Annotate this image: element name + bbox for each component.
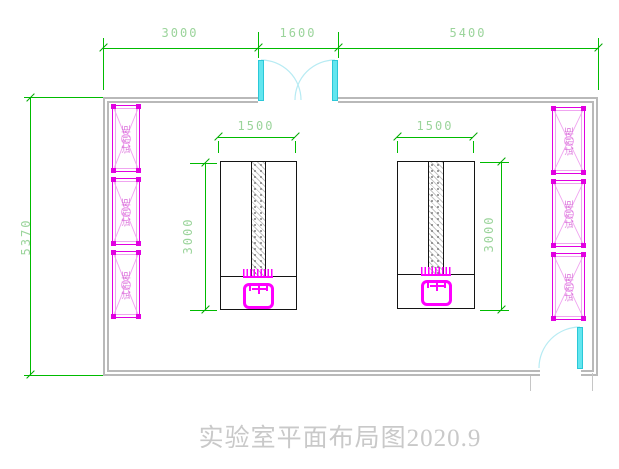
cabinet-post bbox=[551, 170, 556, 175]
drainer-icon bbox=[421, 267, 451, 276]
cabinet-post bbox=[581, 170, 586, 175]
dim-label-top-middle: 1600 bbox=[268, 26, 328, 40]
faucet-handle bbox=[427, 283, 429, 288]
sink-icon bbox=[421, 280, 452, 306]
dim-line-top bbox=[103, 48, 598, 49]
door-leaf-bottom bbox=[577, 327, 583, 369]
cabinet-post bbox=[136, 314, 141, 319]
wall-opening-top bbox=[258, 95, 338, 105]
cabinet-post bbox=[136, 168, 141, 173]
door-leaf-top-left bbox=[258, 60, 264, 101]
cabinet-post bbox=[111, 104, 116, 109]
reagent-cabinet: 试剂柜 bbox=[112, 251, 140, 318]
reagent-cabinet: 试剂柜 bbox=[112, 105, 140, 172]
floor-plan-canvas: 3000 1600 5400 5370 试剂柜 bbox=[0, 0, 619, 469]
cabinet-post bbox=[581, 179, 586, 184]
reagent-cabinet: 试剂柜 bbox=[112, 178, 140, 245]
bench-service-chase bbox=[251, 162, 266, 276]
cabinet-post bbox=[551, 243, 556, 248]
dim-label-bench-left-width: 1500 bbox=[226, 119, 286, 133]
wall-stub bbox=[592, 373, 593, 391]
cabinet-post bbox=[111, 168, 116, 173]
dim-label-bench-right-width: 1500 bbox=[405, 119, 465, 133]
dim-line-bench-left-width bbox=[218, 137, 295, 138]
cabinet-label: 试剂柜 bbox=[120, 196, 133, 226]
cabinet-post bbox=[136, 177, 141, 182]
room-wall-outline bbox=[103, 97, 598, 376]
cabinet-post bbox=[581, 243, 586, 248]
cabinet-label: 试剂柜 bbox=[562, 125, 575, 155]
cabinet-post bbox=[581, 316, 586, 321]
dim-witness bbox=[218, 141, 219, 153]
dim-label-left-overall: 5370 bbox=[19, 207, 33, 267]
reagent-cabinet: 试剂柜 bbox=[552, 180, 585, 247]
dim-witness bbox=[397, 141, 398, 153]
faucet-handle bbox=[266, 286, 268, 291]
sink-icon bbox=[243, 283, 274, 309]
dim-line-bench-right-width bbox=[397, 137, 473, 138]
cabinet-label: 试剂柜 bbox=[120, 269, 133, 299]
dim-witness bbox=[480, 162, 509, 163]
faucet-bar bbox=[252, 288, 266, 290]
cabinet-post bbox=[551, 316, 556, 321]
faucet-bar bbox=[430, 285, 444, 287]
cabinet-post bbox=[136, 250, 141, 255]
dim-witness bbox=[295, 141, 296, 153]
reagent-cabinet: 试剂柜 bbox=[552, 107, 585, 174]
dim-label-bench-left-depth: 3000 bbox=[181, 206, 195, 266]
cabinet-label: 试剂柜 bbox=[120, 123, 133, 153]
reagent-cabinet: 试剂柜 bbox=[552, 253, 585, 320]
door-leaf-top-right bbox=[332, 60, 338, 101]
dim-witness bbox=[480, 310, 509, 311]
dim-label-top-right: 5400 bbox=[438, 26, 498, 40]
cabinet-post bbox=[551, 179, 556, 184]
dim-witness bbox=[24, 375, 103, 376]
cabinet-post bbox=[111, 314, 116, 319]
cabinet-label: 试剂柜 bbox=[562, 271, 575, 301]
dim-label-bench-right-depth: 3000 bbox=[482, 204, 496, 264]
bench-service-chase bbox=[428, 162, 444, 274]
cabinet-post bbox=[111, 241, 116, 246]
dim-line-bench-right-depth bbox=[501, 162, 502, 310]
cabinet-post bbox=[136, 104, 141, 109]
cabinet-post bbox=[111, 177, 116, 182]
cabinet-post bbox=[581, 106, 586, 111]
cabinet-post bbox=[551, 252, 556, 257]
cabinet-post bbox=[111, 250, 116, 255]
cabinet-post bbox=[581, 252, 586, 257]
dim-witness bbox=[473, 141, 474, 153]
cabinet-post bbox=[136, 241, 141, 246]
cabinet-label: 试剂柜 bbox=[562, 198, 575, 228]
drainer-icon bbox=[243, 269, 273, 278]
dim-witness bbox=[24, 97, 103, 98]
wall-opening-bottom bbox=[540, 368, 581, 378]
faucet-handle bbox=[444, 283, 446, 288]
dim-line-bench-left-depth bbox=[205, 163, 206, 310]
dim-label-top-left: 3000 bbox=[150, 26, 210, 40]
lab-bench bbox=[397, 161, 475, 309]
lab-bench bbox=[220, 161, 297, 310]
faucet-handle bbox=[249, 286, 251, 291]
drawing-title: 实验室平面布局图2020.9 bbox=[180, 418, 500, 454]
wall-stub bbox=[530, 376, 531, 391]
cabinet-post bbox=[551, 106, 556, 111]
